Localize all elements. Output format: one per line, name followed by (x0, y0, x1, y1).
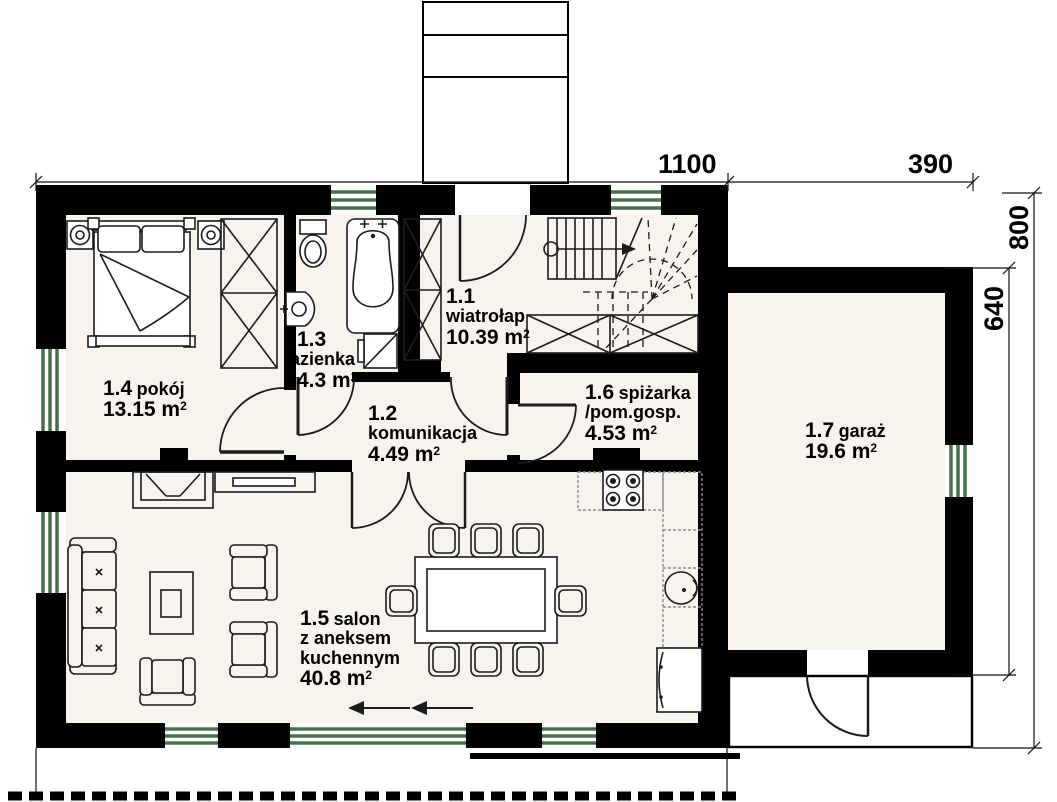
armchair-1 (230, 545, 277, 600)
dim-house-width: 1100 (658, 149, 717, 180)
dim-garage-depth: 640 (979, 286, 1010, 331)
dining-table (415, 557, 557, 643)
area-superscript: 2 (650, 423, 657, 437)
armchair-2 (230, 622, 277, 677)
dim-garage-width: 390 (908, 149, 953, 180)
window-garage-right (945, 441, 973, 501)
bed (88, 218, 195, 347)
window-living-left (36, 508, 66, 597)
label-spizarka: 1.6 spiżarka /pom.gosp. 4.53 m2 (585, 382, 691, 444)
room-number: 1.4 (103, 377, 132, 400)
area-superscript: 2 (433, 444, 440, 458)
nightstand-right (198, 221, 224, 249)
room-area: 4.49 m (368, 443, 433, 466)
window-stairs-top (607, 185, 665, 215)
room-area: 4.3 m (297, 369, 351, 392)
bathtub (347, 219, 399, 333)
room-area: 4.53 m (585, 422, 650, 445)
driveway (729, 676, 972, 747)
fridge (657, 648, 702, 712)
window-bedroom-left (36, 345, 66, 435)
room-name: pokój (137, 379, 185, 399)
room-area: 40.8 m (300, 667, 365, 690)
room-number: 1.5 (300, 607, 329, 630)
armchair-3 (140, 658, 195, 705)
label-lazienka: 1.3 łazienka 4.3 m2 (285, 329, 357, 391)
label-garaz: 1.7 garaż 19.6 m2 (805, 420, 886, 463)
room-number: 1.3 (297, 328, 326, 351)
site-lines (8, 748, 741, 796)
stove (603, 470, 643, 510)
room-number: 1.6 (585, 381, 614, 404)
room-number: 1.1 (446, 285, 475, 308)
label-komunikacja: 1.2 komunikacja 4.49 m2 (368, 403, 477, 465)
kitchen-flue-pier (593, 448, 640, 472)
room-number: 1.7 (805, 419, 834, 442)
room-name-line2: /pom.gosp. (585, 402, 681, 422)
floor-plan: 1.1 wiatrołap 10.39 m2 1.2 komunikacja 4… (0, 0, 1057, 802)
area-superscript: 2 (180, 399, 187, 413)
room-name: łazienka (285, 349, 355, 369)
sofa (68, 538, 116, 674)
fireplace-flue (160, 448, 188, 461)
label-pokoj: 1.4 pokój 13.15 m2 (103, 378, 187, 421)
room-area: 19.6 m (805, 440, 870, 463)
chimney (423, 2, 568, 183)
window-kitchen-bottom (538, 723, 600, 748)
area-superscript: 2 (870, 441, 877, 455)
room-area: 13.15 m (103, 398, 180, 421)
label-wiatrolap: 1.1 wiatrołap 10.39 m2 (446, 286, 530, 348)
toilet (300, 220, 326, 267)
room-area: 10.39 m (446, 326, 523, 349)
room-name: wiatrołap (446, 306, 525, 326)
area-superscript: 2 (365, 668, 372, 682)
window-terrace-door (286, 723, 470, 748)
room-number: 1.2 (368, 402, 397, 425)
room-name-line3: kuchennym (300, 648, 400, 668)
shoe-cabinet (406, 360, 441, 374)
window-bathroom-top (327, 185, 380, 215)
room-name: salon (334, 609, 381, 629)
room-name: komunikacja (368, 423, 477, 443)
room-name: spiżarka (619, 383, 691, 403)
area-superscript: 2 (351, 370, 358, 384)
dim-house-depth: 800 (1004, 205, 1035, 250)
washing-machine (358, 334, 397, 368)
window-living-bottom-small (161, 723, 222, 748)
label-salon: 1.5 salon z aneksem kuchennym 40.8 m2 (300, 608, 400, 689)
room-name: garaż (839, 421, 886, 441)
room-name-line2: z aneksem (300, 628, 391, 648)
area-superscript: 2 (523, 327, 530, 341)
